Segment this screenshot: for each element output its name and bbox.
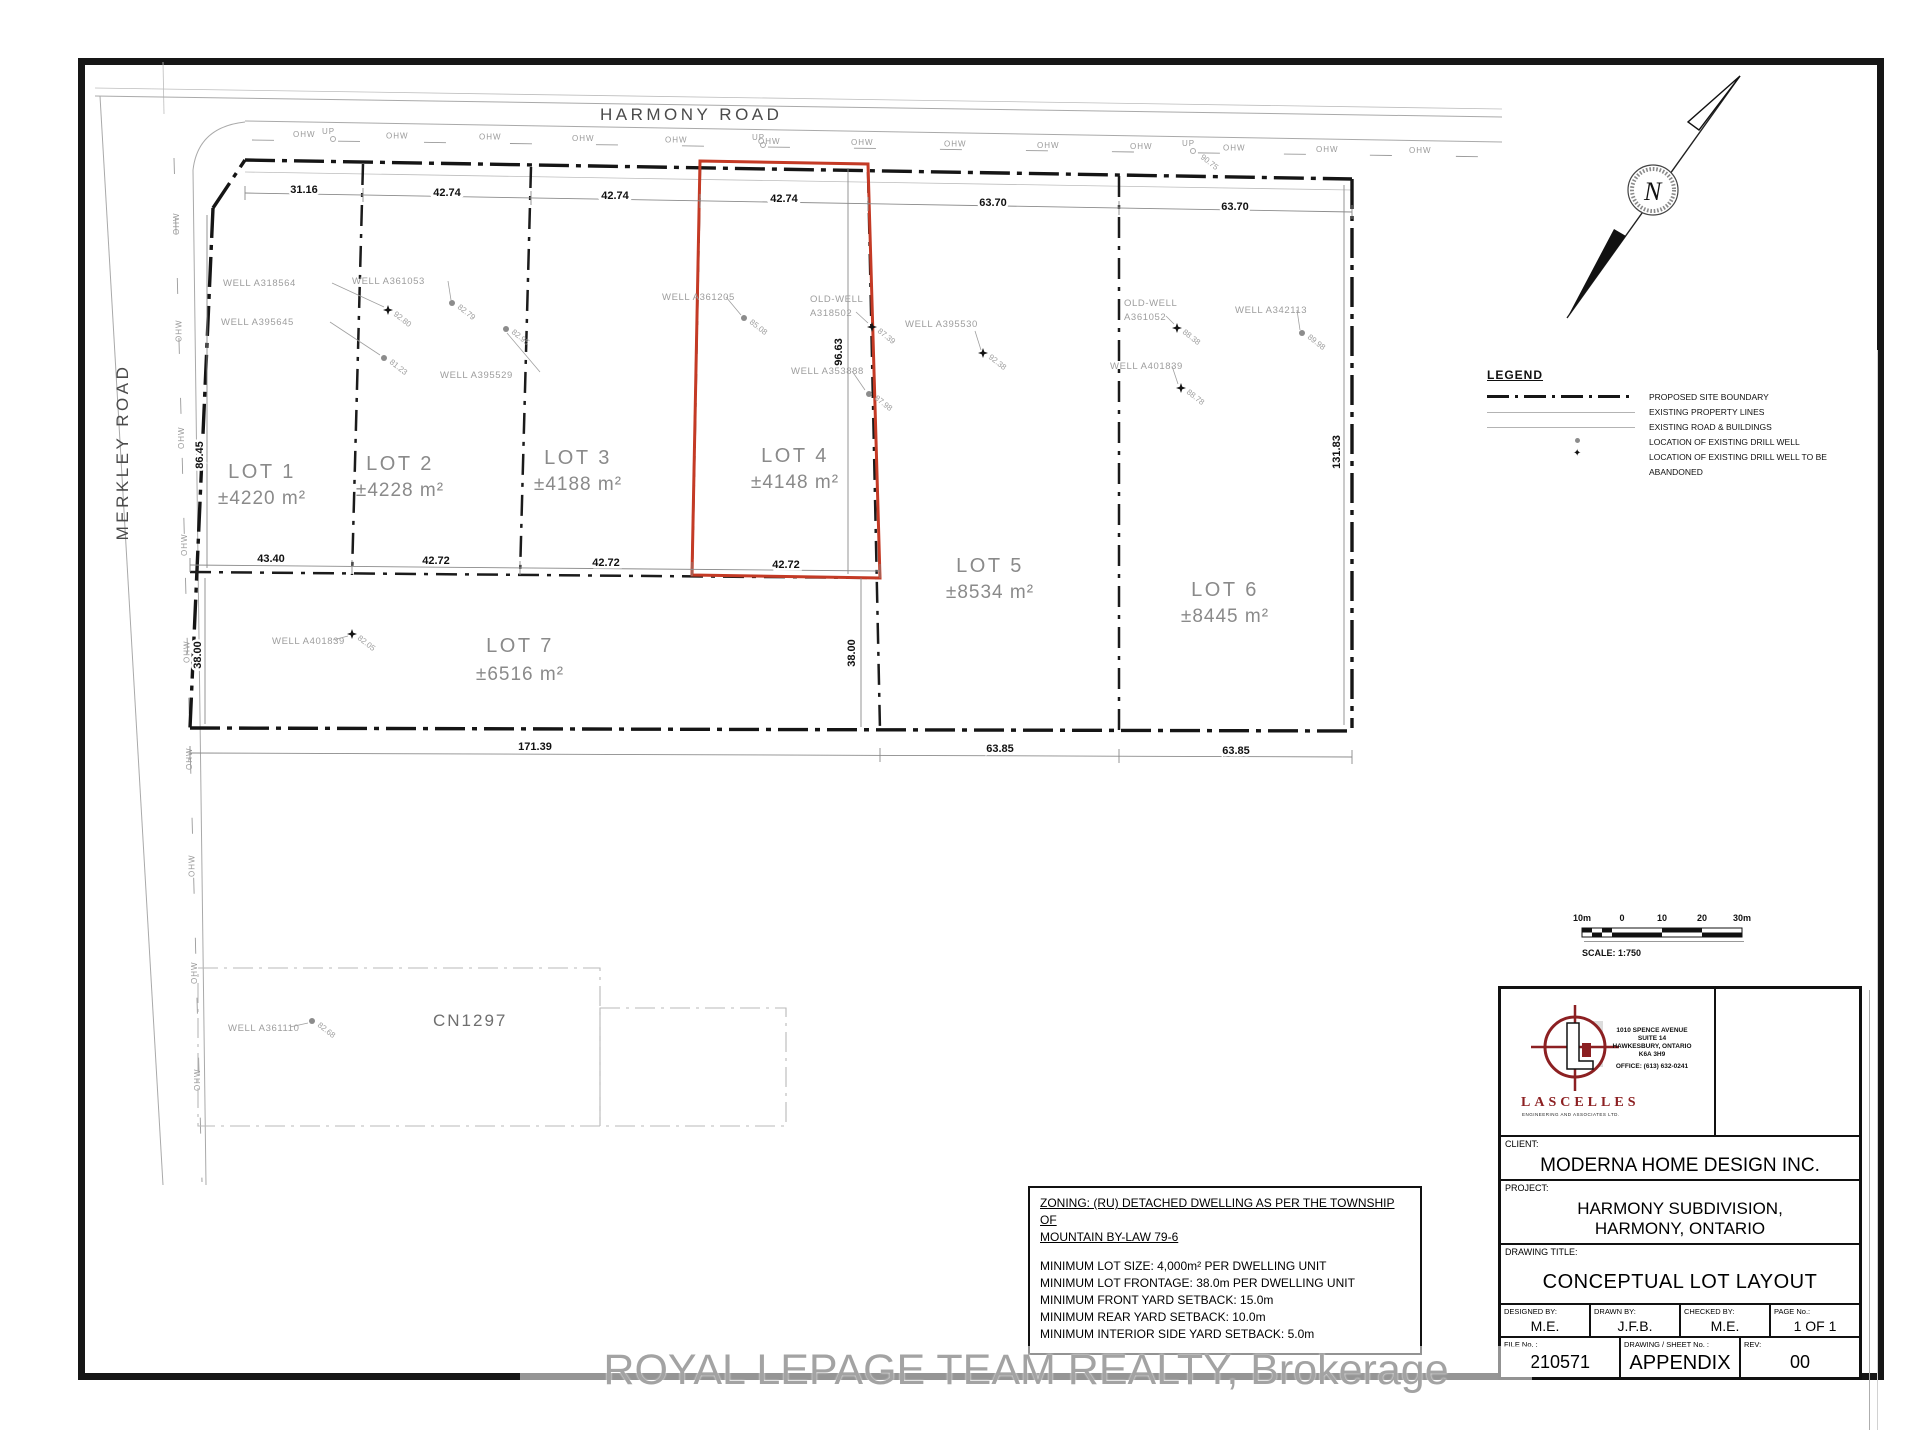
project-name: HARMONY SUBDIVISION,: [1501, 1199, 1859, 1219]
lot5-name: LOT 5: [956, 555, 1024, 577]
ohw-label: OHW: [185, 747, 194, 770]
zoning-rule: MINIMUM REAR YARD SETBACK: 10.0m: [1040, 1309, 1410, 1326]
svg-text:WELL A395530: WELL A395530: [905, 319, 978, 330]
svg-text:87.39: 87.39: [876, 326, 898, 346]
svg-text:WELL A361053: WELL A361053: [352, 276, 425, 287]
well-marker: OLD-WELL A318502 87.39: [810, 294, 898, 346]
svg-text:92.38: 92.38: [987, 352, 1009, 372]
credits-row: DESIGNED BY: M.E. DRAWN BY: J.F.B. CHECK…: [1501, 1305, 1859, 1338]
utility-pole-icon: UP: [322, 127, 336, 142]
lot-labels: LOT 1 ±4220 m² LOT 2 ±4228 m² LOT 3 ±418…: [218, 445, 1269, 685]
ohw-label: OHW: [572, 134, 595, 143]
well-marker: WELL A353888 87.98: [791, 366, 895, 413]
zoning-rule: MINIMUM LOT FRONTAGE: 38.0m PER DWELLING…: [1040, 1275, 1410, 1292]
parcel-cn1297-label: CN1297: [433, 1011, 507, 1030]
lot6-area: ±8445 m²: [1181, 606, 1269, 627]
svg-text:92.80: 92.80: [392, 309, 414, 329]
svg-text:88.38: 88.38: [1181, 327, 1203, 347]
ohw-label: OHW: [190, 961, 199, 984]
svg-text:82.95: 82.95: [510, 327, 532, 347]
project-label: PROJECT:: [1505, 1183, 1549, 1193]
lot3-area: ±4188 m²: [534, 474, 622, 495]
dim-label: 131.83: [1331, 435, 1343, 469]
lot1-name: LOT 1: [228, 461, 296, 483]
designed-by-cell: DESIGNED BY: M.E.: [1501, 1305, 1591, 1336]
ohw-label: OHW: [1130, 142, 1153, 151]
scale-text: SCALE: 1:750: [1582, 948, 1641, 958]
well-marker: WELL A395645 81.23: [221, 317, 410, 377]
lot7-area: ±6516 m²: [476, 664, 564, 685]
lot4-name: LOT 4: [761, 445, 829, 467]
harmony-road-centerline: [95, 88, 1502, 109]
ohw-label: OHW: [188, 854, 197, 877]
pole-elevation: 90.75: [1199, 152, 1221, 172]
legend: LEGEND PROPOSED SITE BOUNDARY EXISTING P…: [1487, 368, 1817, 480]
zoning-note-box: ZONING: (RU) DETACHED DWELLING AS PER TH…: [1028, 1186, 1422, 1355]
ohw-label: OHW: [1223, 144, 1246, 153]
dim-label: 42.72: [772, 559, 800, 571]
ohw-label: OHW: [1316, 145, 1339, 154]
svg-text:89.98: 89.98: [1306, 332, 1328, 352]
legend-item-wrap: ABANDONED: [1487, 465, 1817, 480]
merkley-road-edge-west: [100, 96, 163, 1185]
merkley-road-label: MERKLEY ROAD: [113, 364, 132, 541]
lot1-area: ±4220 m²: [218, 488, 306, 509]
overhead-wire-line-top: [252, 140, 1502, 157]
svg-text:WELL A353888: WELL A353888: [791, 366, 864, 377]
svg-text:OLD-WELL: OLD-WELL: [810, 294, 863, 305]
lot2-name: LOT 2: [366, 453, 434, 475]
ohw-label: OHW: [944, 139, 967, 148]
svg-text:20: 20: [1697, 913, 1707, 923]
dim-label: 42.74: [433, 187, 461, 199]
well-abandoned-icon: ✦: [1573, 448, 1581, 459]
ohw-label: OHW: [180, 533, 189, 556]
drawn-by-cell: DRAWN BY: J.F.B.: [1591, 1305, 1681, 1336]
company-subtitle: ENGINEERING AND ASSOCIATES LTD.: [1522, 1112, 1620, 1117]
scale-bar: 10m 0 10 20 30m SCALE: 1:750: [1573, 913, 1751, 958]
dim-label: 42.72: [422, 555, 450, 567]
lot4-area: ±4148 m²: [751, 472, 839, 493]
well-marker: WELL A395530 92.38: [905, 319, 1009, 372]
drawing-title-row: DRAWING TITLE: CONCEPTUAL LOT LAYOUT: [1501, 1245, 1859, 1305]
dim-label: 31.16: [290, 184, 318, 196]
svg-text:30m: 30m: [1733, 913, 1751, 923]
ohw-label: OHW: [172, 212, 181, 235]
dim-label: 63.85: [986, 743, 1014, 755]
svg-text:81.23: 81.23: [388, 357, 410, 377]
dim-label: 96.63: [833, 338, 845, 366]
svg-text:0: 0: [1619, 913, 1624, 923]
company-name: LASCELLES: [1521, 1095, 1639, 1111]
merkley-road-centerline-tick: [163, 62, 164, 114]
dim-label: 86.45: [194, 441, 206, 469]
svg-text:A361052: A361052: [1124, 312, 1166, 323]
company-address: 1010 SPENCE AVENUE SUITE 14 HAWKESBURY, …: [1597, 1027, 1707, 1059]
zoning-heading: ZONING: (RU) DETACHED DWELLING AS PER TH…: [1040, 1195, 1410, 1229]
legend-item: ✦ LOCATION OF EXISTING DRILL WELL TO BE: [1487, 450, 1817, 465]
lot-line-2-3: [520, 167, 531, 576]
well-dot-icon: [1575, 438, 1580, 443]
svg-text:88.78: 88.78: [1185, 387, 1207, 407]
legend-item: EXISTING ROAD & BUILDINGS: [1487, 420, 1817, 435]
client-row: CLIENT: MODERNA HOME DESIGN INC.: [1501, 1137, 1859, 1181]
lot7-name: LOT 7: [486, 635, 554, 657]
utility-pole-icon: UP 90.75: [1182, 139, 1221, 172]
sheet-no-cell: DRAWING / SHEET No. : APPENDIX: [1621, 1338, 1741, 1378]
ohw-label: OHW: [177, 426, 186, 449]
well-marker: WELL A361205 85.08: [662, 292, 770, 337]
svg-text:WELL A395645: WELL A395645: [221, 317, 294, 328]
svg-text:82.68: 82.68: [316, 1020, 338, 1040]
dim-label: 63.85: [1222, 745, 1250, 757]
well-marker: WELL A342113 89.98: [1235, 305, 1328, 352]
svg-text:OLD-WELL: OLD-WELL: [1124, 298, 1177, 309]
project-row: PROJECT: HARMONY SUBDIVISION, HARMONY, O…: [1501, 1181, 1859, 1245]
brokerage-watermark: ROYAL LEPAGE TEAM REALTY, Brokerage: [520, 1346, 1532, 1395]
well-marker: WELL A401839 88.78: [1110, 361, 1207, 407]
plan-sheet: HARMONY ROAD MERKLEY ROAD OHWOHWOHWOHWOH…: [0, 0, 1920, 1440]
lot5-area: ±8534 m²: [946, 582, 1034, 603]
ohw-label: OHW: [175, 319, 184, 342]
zoning-rule: MINIMUM LOT SIZE: 4,000m² PER DWELLING U…: [1040, 1258, 1410, 1275]
legend-item: EXISTING PROPERTY LINES: [1487, 405, 1817, 420]
rev-cell: REV: 00: [1741, 1338, 1859, 1378]
title-block-logo-row: LASCELLES ENGINEERING AND ASSOCIATES LTD…: [1501, 989, 1859, 1137]
svg-text:WELL A395529: WELL A395529: [440, 370, 513, 381]
drawing-title: CONCEPTUAL LOT LAYOUT: [1501, 1271, 1859, 1294]
client-name: MODERNA HOME DESIGN INC.: [1501, 1155, 1859, 1177]
file-row: FILE No. : 210571 DRAWING / SHEET No. : …: [1501, 1338, 1859, 1378]
svg-text:WELL A318564: WELL A318564: [223, 278, 296, 289]
zoning-rule: MINIMUM FRONT YARD SETBACK: 15.0m: [1040, 1292, 1410, 1309]
svg-text:WELL A342113: WELL A342113: [1235, 305, 1307, 316]
dim-label: 171.39: [518, 741, 552, 753]
lot3-name: LOT 3: [544, 447, 612, 469]
zoning-rule: MINIMUM INTERIOR SIDE YARD SETBACK: 5.0m: [1040, 1326, 1410, 1343]
client-label: CLIENT:: [1505, 1139, 1539, 1149]
ohw-label: OHW: [386, 131, 409, 140]
harmony-road-edge-north: [95, 96, 1502, 117]
ohw-label: OHW: [193, 1068, 202, 1091]
ohw-label: OHW: [1037, 141, 1060, 150]
lot2-area: ±4228 m²: [356, 480, 444, 501]
well-marker: WELL A361110 82.68: [228, 1018, 338, 1040]
dim-label: 38.00: [846, 639, 858, 667]
svg-text:WELL A361110: WELL A361110: [228, 1023, 299, 1034]
ohw-label: OHW: [665, 135, 688, 144]
dim-label: 43.40: [257, 553, 285, 565]
lot6-name: LOT 6: [1191, 579, 1259, 601]
svg-text:82.79: 82.79: [456, 302, 478, 322]
checked-by-cell: CHECKED BY: M.E.: [1681, 1305, 1771, 1336]
svg-text:WELL A401839: WELL A401839: [272, 636, 345, 647]
title-block: LASCELLES ENGINEERING AND ASSOCIATES LTD…: [1498, 986, 1862, 1380]
zoning-heading: MOUNTAIN BY-LAW 79-6: [1040, 1229, 1410, 1246]
well-marker: WELL A361053 82.79: [352, 276, 478, 322]
well-marker: OLD-WELL A361052 88.38: [1124, 298, 1203, 347]
svg-text:10m: 10m: [1573, 913, 1591, 923]
site-boundary-south: [190, 728, 1352, 731]
project-location: HARMONY, ONTARIO: [1501, 1219, 1859, 1239]
well-marker: WELL A401839 82.05: [272, 629, 378, 653]
dim-label: 63.70: [1221, 201, 1249, 213]
site-boundary-corner-cut: [213, 160, 245, 208]
page-no-cell: PAGE No.: 1 OF 1: [1771, 1305, 1859, 1336]
ohw-labels-top: OHWOHWOHWOHWOHWOHWOHWOHWOHWOHWOHWOHWOHW: [293, 130, 1432, 155]
dim-label: 63.70: [979, 197, 1007, 209]
lot-line-1-2: [352, 164, 363, 575]
dim-label: 38.00: [192, 641, 204, 669]
dim-label: 42.72: [592, 557, 620, 569]
north-arrow-icon: N: [1567, 76, 1740, 318]
ohw-label: OHW: [1409, 146, 1432, 155]
north-letter: N: [1643, 177, 1663, 206]
up-label: UP: [1182, 139, 1195, 148]
building-outline-extension: [600, 1008, 786, 1126]
svg-text:A318502: A318502: [810, 308, 852, 319]
road-line-symbol: [1487, 427, 1635, 428]
ohw-label: OHW: [182, 640, 191, 663]
harmony-road-label: HARMONY ROAD: [600, 105, 782, 124]
property-line-symbol: [1487, 412, 1635, 413]
svg-text:82.05: 82.05: [356, 633, 378, 653]
dim-label: 42.74: [601, 190, 629, 202]
up-label: UP: [752, 133, 765, 142]
dim-label: 42.74: [770, 193, 798, 205]
svg-text:10: 10: [1657, 913, 1667, 923]
legend-item: LOCATION OF EXISTING DRILL WELL: [1487, 435, 1817, 450]
boundary-line-symbol: [1487, 395, 1635, 398]
up-label: UP: [322, 127, 335, 136]
company-phone: OFFICE: (613) 632-0241: [1597, 1063, 1707, 1070]
drawing-title-label: DRAWING TITLE:: [1505, 1247, 1578, 1257]
ohw-label: OHW: [479, 133, 502, 142]
ohw-label: OHW: [293, 130, 316, 139]
building-outline: [198, 968, 600, 1126]
svg-text:WELL A361205: WELL A361205: [662, 292, 735, 303]
ohw-label: OHW: [851, 138, 874, 147]
legend-title: LEGEND: [1487, 368, 1817, 382]
legend-item: PROPOSED SITE BOUNDARY: [1487, 390, 1817, 405]
wells: WELL A318564 92.80 WELL A395645 81.23 WE…: [221, 276, 1328, 1040]
svg-text:85.08: 85.08: [748, 317, 770, 337]
